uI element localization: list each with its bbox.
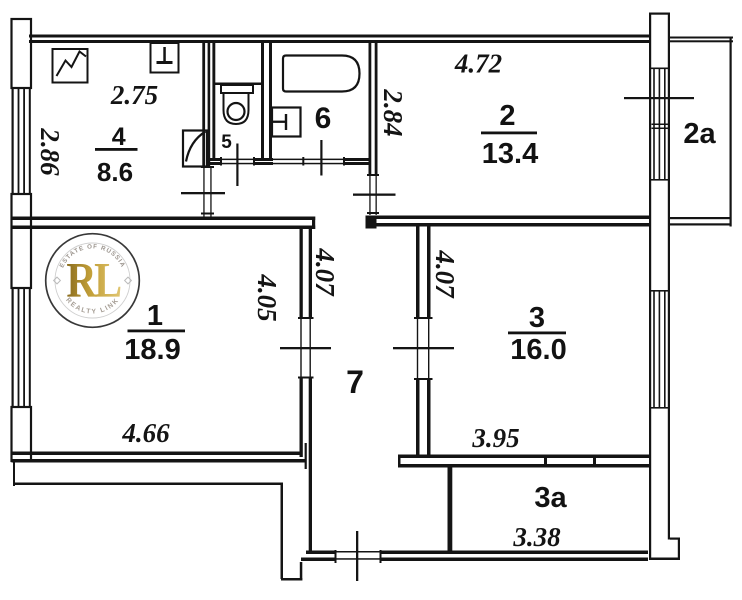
svg-text:16.0: 16.0 — [510, 334, 566, 366]
svg-text:2a: 2a — [683, 118, 716, 150]
svg-text:1: 1 — [147, 300, 163, 332]
svg-text:6: 6 — [315, 102, 332, 135]
svg-text:3.38: 3.38 — [512, 522, 561, 552]
svg-text:4.72: 4.72 — [454, 49, 502, 79]
svg-text:3: 3 — [529, 302, 545, 334]
svg-text:3.95: 3.95 — [471, 423, 519, 453]
svg-text:3a: 3a — [534, 482, 567, 514]
svg-text:4.66: 4.66 — [121, 418, 170, 448]
svg-text:4.07: 4.07 — [430, 249, 460, 299]
svg-text:2.75: 2.75 — [110, 80, 158, 110]
svg-text:2: 2 — [499, 100, 515, 132]
svg-text:7: 7 — [346, 364, 364, 400]
svg-text:4: 4 — [112, 123, 126, 151]
svg-text:13.4: 13.4 — [482, 138, 538, 170]
svg-text:2.84: 2.84 — [378, 88, 408, 136]
svg-text:18.9: 18.9 — [124, 334, 180, 366]
svg-text:5: 5 — [221, 132, 232, 153]
svg-text:2.86: 2.86 — [35, 127, 65, 176]
svg-text:8.6: 8.6 — [97, 157, 133, 187]
svg-text:4.05: 4.05 — [252, 273, 282, 321]
svg-text:RL: RL — [66, 252, 120, 307]
svg-text:4.07: 4.07 — [310, 247, 340, 297]
